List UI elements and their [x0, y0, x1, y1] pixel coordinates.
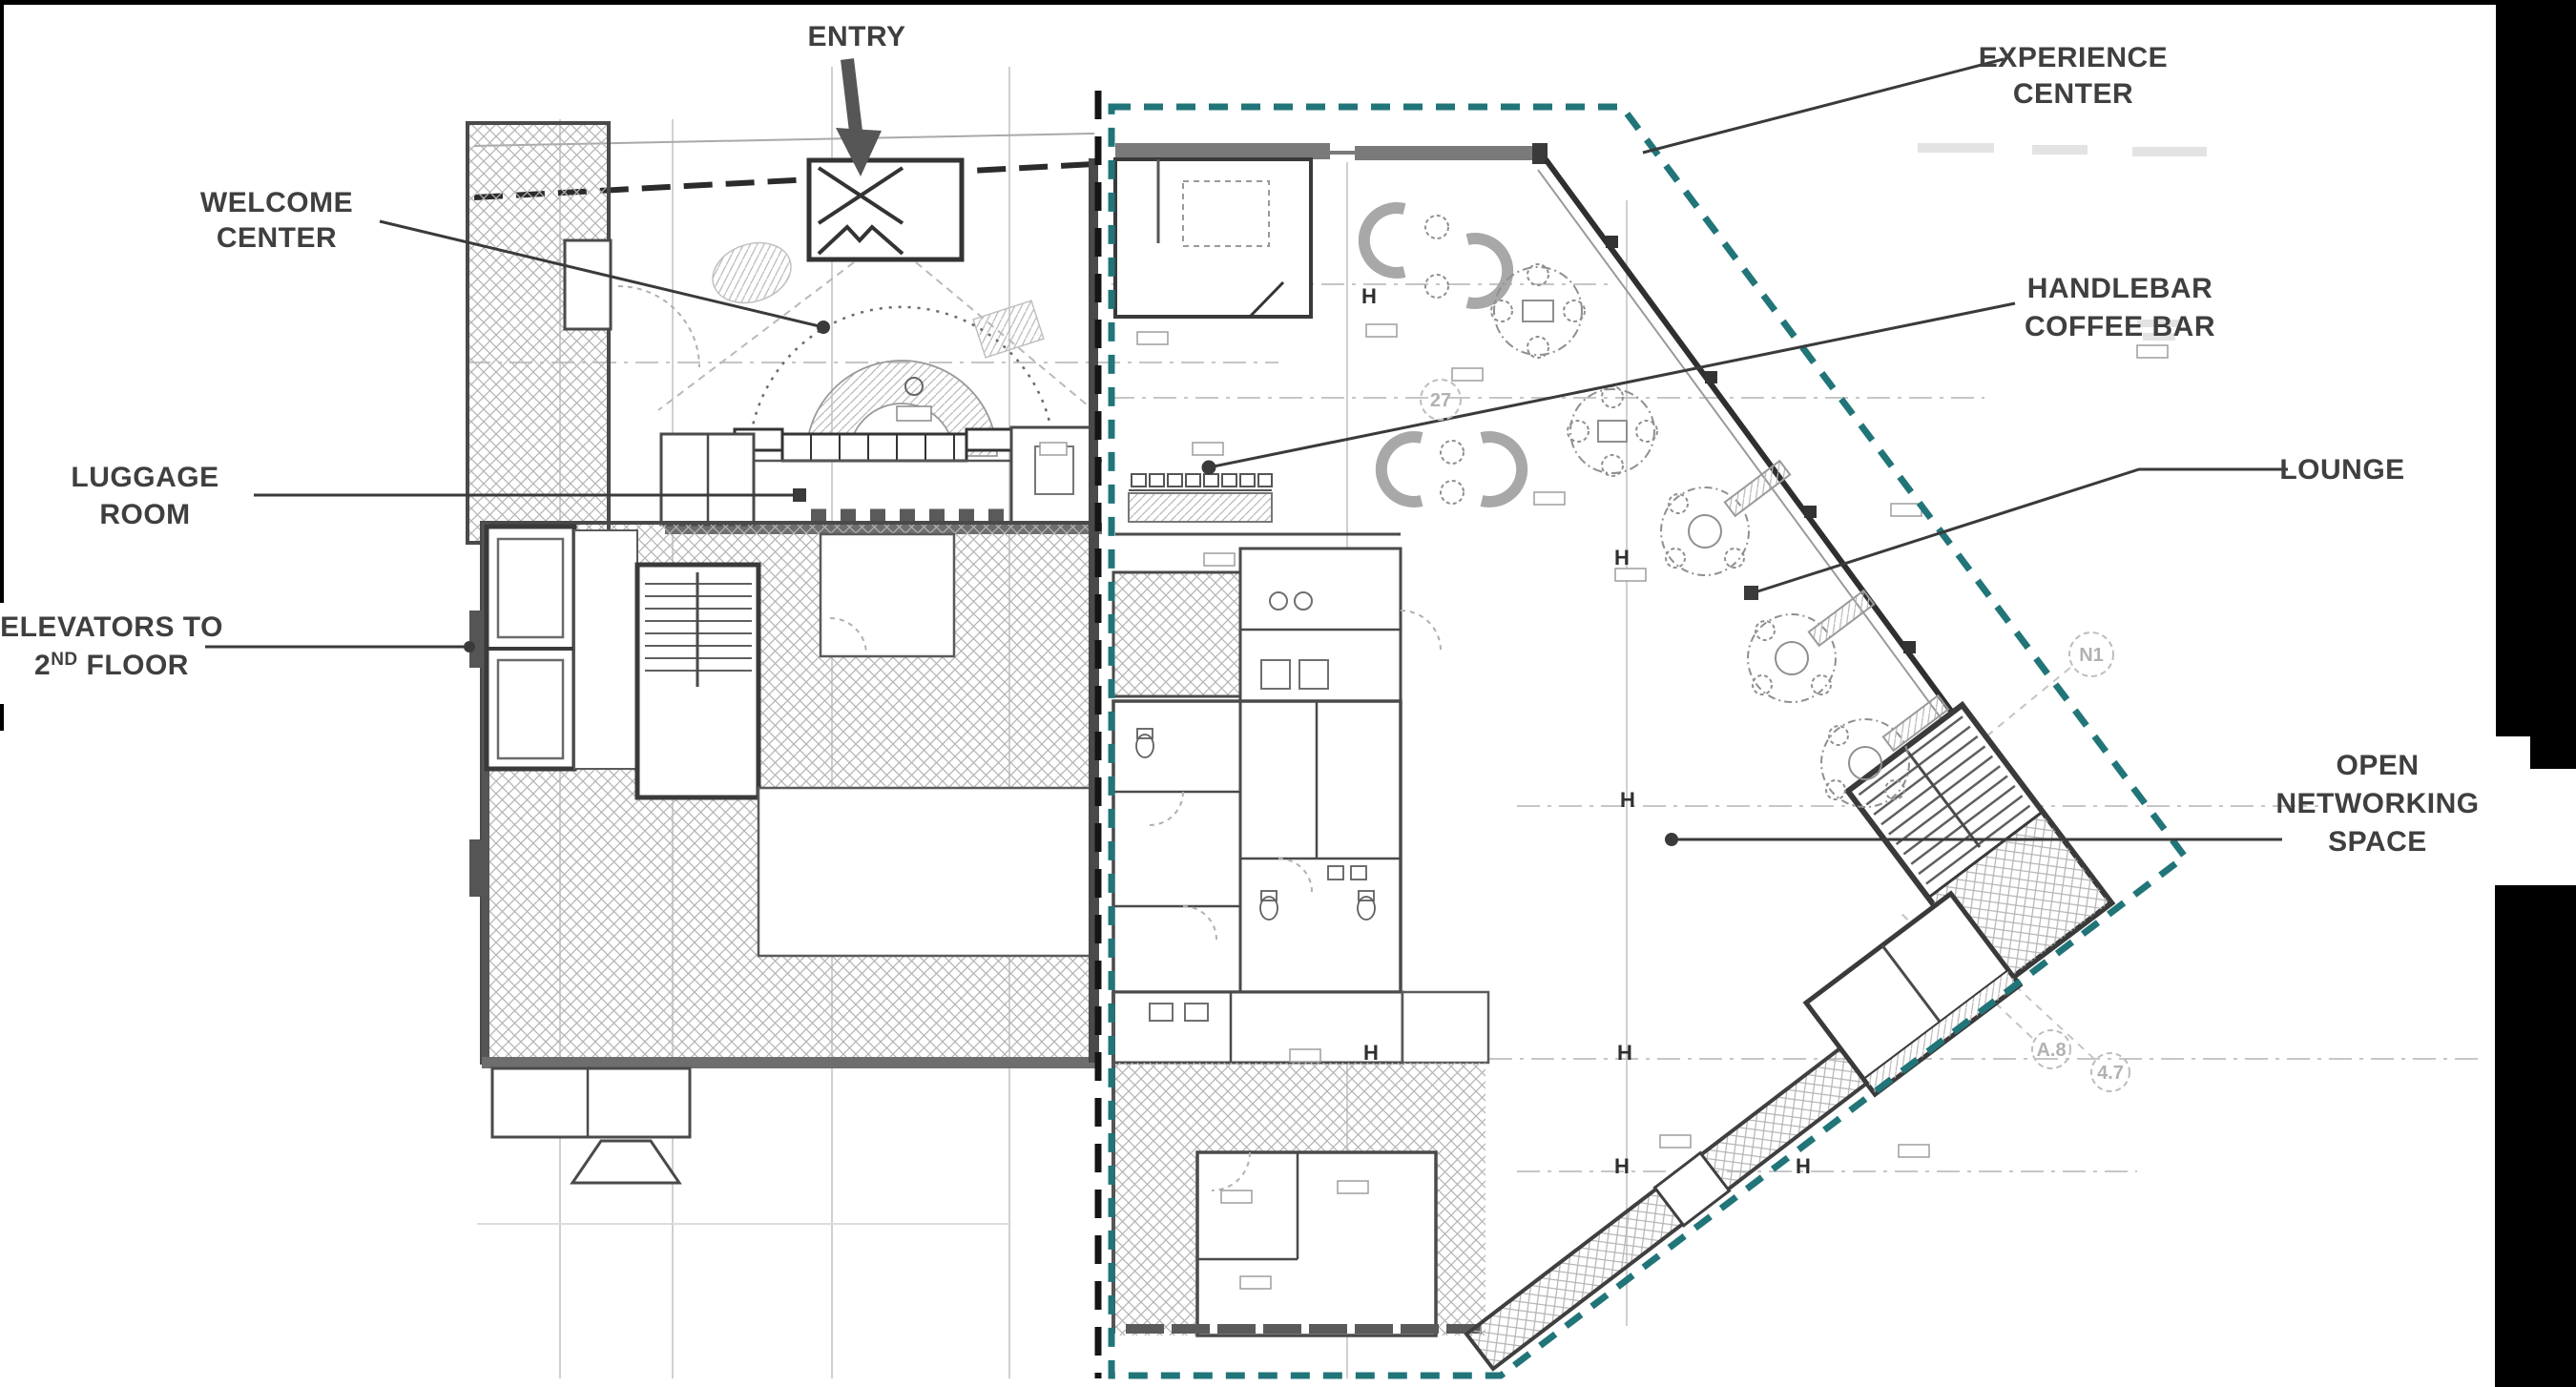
welcome-center-label-line2: CENTER	[217, 222, 337, 254]
experience-center-label-line2: CENTER	[2013, 78, 2133, 110]
column-marker: H	[1617, 1041, 1632, 1065]
handlebar-label-line2: COFFEE BAR	[2025, 311, 2215, 342]
entry-label: ENTRY	[807, 21, 905, 52]
boh-rooms	[1113, 534, 1441, 992]
door-opening	[565, 240, 611, 329]
stairwell-core	[637, 565, 758, 797]
service-room	[821, 534, 954, 656]
edge-left-dash	[0, 704, 4, 731]
corridor	[758, 788, 1094, 956]
elevators-label-line1: ELEVATORS TO	[0, 611, 223, 643]
back-office-room	[1011, 427, 1094, 523]
grid-bubble-label: A.8	[2036, 1040, 2066, 1061]
experience-center-label-line1: EXPERIENCE	[1979, 42, 2168, 73]
edge-left-upper	[0, 0, 4, 603]
south-wall	[482, 1057, 1097, 1068]
north-facade-band	[1355, 146, 1546, 160]
edge-right-lower	[2495, 885, 2576, 1387]
column-marker: H	[1614, 1154, 1630, 1178]
column-marker: H	[1361, 284, 1377, 308]
grid-bubble-label: 27	[1430, 390, 1451, 411]
theater-room	[1115, 159, 1311, 317]
column-marker: H	[1363, 1041, 1379, 1065]
luggage-room-label-line2: ROOM	[99, 499, 190, 530]
column-marker: H	[1614, 546, 1630, 569]
edge-right-step	[2530, 736, 2576, 769]
lower-rooms	[492, 1068, 690, 1137]
lounge-label: LOUNGE	[2279, 454, 2404, 486]
column-marker: H	[1620, 788, 1635, 812]
existing-wing-hatched-block	[467, 123, 609, 543]
grid-bubble-label: N1	[2079, 645, 2104, 666]
storage-room	[1197, 1152, 1436, 1335]
edge-top	[0, 0, 2576, 5]
column-marker: H	[1796, 1154, 1811, 1178]
restroom-block	[1113, 701, 1401, 992]
grid-bubble-label: 4.7	[2097, 1063, 2124, 1084]
pantry-hatched	[1113, 572, 1240, 696]
north-facade-band	[1115, 143, 1330, 159]
luggage-room-label-line1: LUGGAGE	[71, 462, 218, 493]
open-networking-label-line1: OPEN	[2336, 750, 2419, 781]
bottom-rooms	[1113, 992, 1488, 1335]
open-networking-label-line2: NETWORKING	[2275, 788, 2479, 819]
floor-plan-canvas: ENTRY WELCOME CENTER LUGGAGE ROOM ELEVAT…	[0, 0, 2576, 1387]
elevator-lobby	[574, 530, 637, 769]
handlebar-label-line1: HANDLEBAR	[2027, 273, 2213, 304]
open-networking-label-line3: SPACE	[2328, 826, 2427, 858]
illegible-tag	[897, 406, 931, 421]
welcome-center-label-line1: WELCOME	[200, 187, 353, 218]
edge-right-upper	[2496, 0, 2576, 736]
coffee-counter	[1129, 493, 1272, 522]
elevator-bank	[487, 527, 574, 769]
